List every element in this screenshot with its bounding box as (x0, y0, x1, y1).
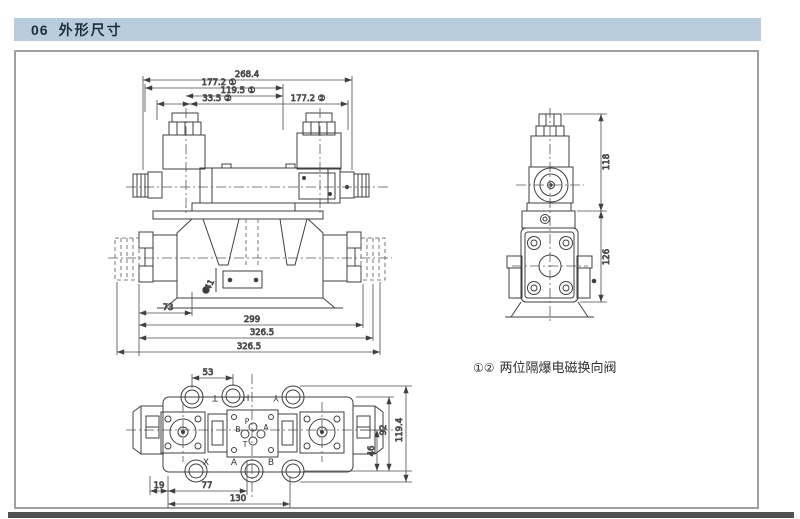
dim-77: 77 (202, 481, 213, 491)
port-letter-H: H (243, 394, 250, 404)
dimension-drawings-canvas: 268.4 177.2 ① 119.5 ① 33.5 ② 177.2 ② 73 … (0, 0, 800, 519)
dim-326-a: 326.5 (250, 328, 274, 338)
dim-92: 92 (379, 425, 389, 436)
note-text: 两位隔爆电磁换向阀 (500, 360, 617, 375)
port-label-P: P (245, 417, 250, 426)
dim-19: 19 (154, 481, 165, 491)
dim-33-2: 33.5 ② (202, 94, 231, 104)
left-solenoid-box (163, 135, 205, 169)
figure-note: ①②两位隔爆电磁换向阀 (473, 357, 617, 376)
dim-overall-width: 268.4 (235, 70, 259, 80)
dim-177-2: 177.2 ② (291, 94, 326, 104)
mounting-flange (521, 228, 578, 302)
dim-299: 299 (244, 315, 260, 325)
right-solenoid-box (297, 133, 341, 169)
port-letter-A: A (231, 458, 238, 468)
front-view-drawing (108, 108, 392, 308)
port-label-T: T (242, 440, 248, 449)
front-view-dimensions: 268.4 177.2 ① 119.5 ① 33.5 ② 177.2 ② 73 … (117, 70, 380, 356)
side-view-dimensions: 118 126 (563, 114, 612, 302)
port-letter-B: B (268, 458, 274, 468)
dim-126: 126 (602, 249, 612, 265)
dim-53: 53 (203, 368, 214, 378)
side-view-drawing (505, 108, 596, 322)
dim-326-b: 326.5 (237, 342, 261, 352)
catalog-page: 06 外形尺寸 (0, 0, 800, 519)
port-label-B: B (235, 425, 240, 434)
bottom-view-dimensions: 53 46 92 119.4 19 77 130 (150, 368, 412, 508)
port-letter-X: X (203, 458, 209, 468)
note-markers: ①② (473, 361, 495, 375)
port-letter-Y: Y (273, 392, 280, 402)
dim-118: 118 (602, 154, 612, 170)
dim-119-4: 119.4 (395, 418, 405, 442)
page-bottom-rule (8, 512, 794, 518)
manifold-block (177, 219, 323, 298)
port-label-A: A (263, 423, 269, 432)
port-letter-T: T (212, 392, 219, 402)
dim-130: 130 (230, 494, 246, 504)
dim-46: 46 (367, 446, 377, 457)
bottom-view-drawing (126, 374, 394, 500)
dim-73: 73 (163, 303, 174, 313)
